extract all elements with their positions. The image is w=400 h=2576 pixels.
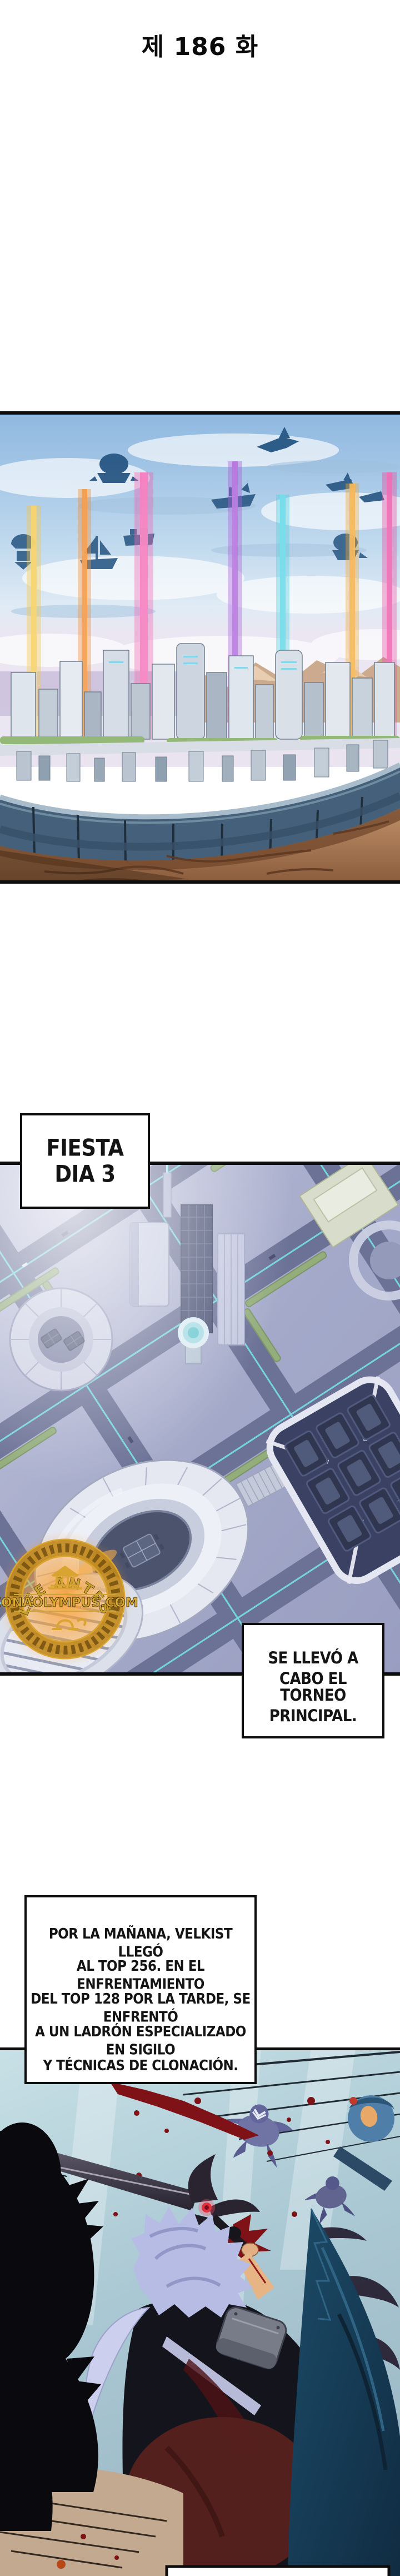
caption-line: Y TÉCNICAS DE CLONACIÓN.	[43, 2057, 238, 2075]
caption-torneo-box: SE LLEVÓ A CABO EL TORNEO PRINCIPAL.	[242, 1623, 384, 1738]
caption-line: DIA 3	[54, 1159, 115, 1189]
caption-line: POR LA MAÑANA, VELKIST LLEGÓ	[27, 1925, 254, 1962]
chapter-title: 제 186 화	[0, 27, 400, 62]
panel-city-skyline	[0, 411, 400, 884]
caption-line: FIESTA	[47, 1133, 124, 1163]
watermark-site-text: ZONAOLYMPUS.COM	[0, 1596, 138, 1610]
caption-line: AL TOP 256. EN EL ENFRENTAMIENTO	[27, 1958, 254, 1995]
bottom-speech-box	[167, 2567, 389, 2576]
caption-velkist-box: POR LA MAÑANA, VELKIST LLEGÓ AL TOP 256.…	[24, 1895, 257, 2084]
panel-aerial-city: LEE ANTES ZONAOLYMPUS.COM	[0, 1162, 400, 1676]
caption-line: DEL TOP 128 POR LA TARDE, SE ENFRENTÓ	[27, 1991, 254, 2027]
comic-page: 제 186 화	[0, 0, 400, 2576]
caption-line: A UN LADRÓN ESPECIALIZADO EN SIGILO	[27, 2024, 254, 2060]
caption-fiesta-box: FIESTA DIA 3	[20, 1113, 150, 1209]
caption-line: SE LLEVÓ A CABO EL	[244, 1648, 382, 1690]
panel-battle-scene	[0, 2047, 400, 2576]
caption-line: TORNEO PRINCIPAL.	[244, 1686, 382, 1727]
